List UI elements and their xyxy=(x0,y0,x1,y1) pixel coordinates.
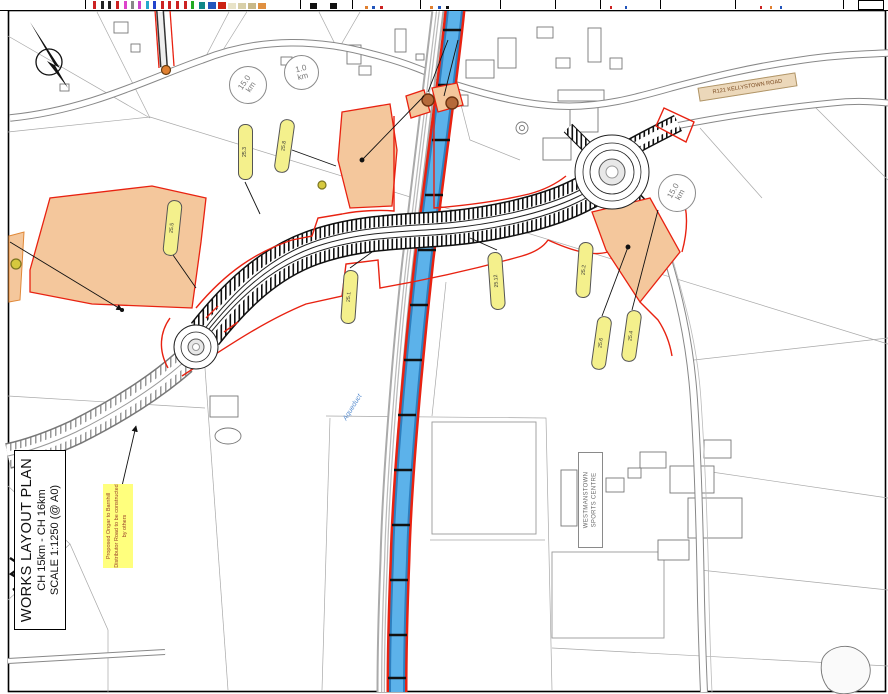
legend-divider xyxy=(843,0,844,9)
legend-divider xyxy=(660,0,661,9)
legend-end-box xyxy=(858,0,884,10)
legend-swatch xyxy=(780,6,782,9)
chainage-marker: 15.0km xyxy=(658,174,696,212)
legend-divider xyxy=(735,0,736,9)
legend-swatch xyxy=(101,1,104,9)
legend-divider xyxy=(600,0,601,9)
legend-swatch xyxy=(258,3,266,9)
title-block: WORKS LAYOUT PLAN CH 15km - CH 16km SCAL… xyxy=(14,450,66,630)
legend-swatch xyxy=(191,1,194,9)
legend-divider xyxy=(85,0,86,9)
works-layout-plan-page: WORKS LAYOUT PLAN CH 15km - CH 16km SCAL… xyxy=(0,0,888,694)
legend-swatch xyxy=(184,1,187,9)
legend-swatch xyxy=(199,2,205,9)
pond xyxy=(821,646,870,693)
distributor-road xyxy=(8,362,184,456)
legend-swatch xyxy=(372,6,375,9)
legend-strip xyxy=(0,0,888,11)
legend-swatch xyxy=(610,6,612,9)
sports-pitches xyxy=(432,422,664,638)
legend-swatch xyxy=(248,3,256,9)
sports-centre-label: WESTMANSTOWN SPORTS CENTRE xyxy=(578,452,603,548)
legend-divider xyxy=(352,0,353,9)
legend-divider xyxy=(420,0,421,9)
map-canvas xyxy=(0,0,888,694)
legend-divider xyxy=(300,0,301,9)
chainage-marker: 1.0km xyxy=(284,55,319,90)
legend-swatch xyxy=(93,1,96,9)
legend-swatch xyxy=(770,6,772,9)
legend-swatch xyxy=(153,1,156,9)
legend-swatch xyxy=(228,3,236,9)
north-arrow-icon xyxy=(30,22,68,88)
legend-swatch xyxy=(208,2,216,9)
legend-swatch xyxy=(430,6,433,9)
legend-swatch xyxy=(138,1,141,9)
legend-swatch xyxy=(146,1,149,9)
roundabout-east xyxy=(575,135,649,209)
legend-swatch xyxy=(365,6,368,9)
legend-swatch xyxy=(168,1,171,9)
legend-swatch xyxy=(438,6,441,9)
construction-note-text: Proposed Ongar to Barnhill Distributor R… xyxy=(103,484,133,568)
legend-swatch xyxy=(124,1,127,9)
legend-swatch xyxy=(116,1,119,9)
legend-swatch xyxy=(238,3,246,9)
legend-swatch xyxy=(131,1,134,9)
legend-swatch xyxy=(330,3,337,9)
plan-scale: SCALE 1:1250 (@ A0) xyxy=(49,485,61,595)
legend-swatch xyxy=(380,6,383,9)
plan-chainage: CH 15km - CH 16km xyxy=(36,489,48,590)
roundabout-west xyxy=(174,325,218,369)
construction-note: Proposed Ongar to Barnhill Distributor R… xyxy=(103,484,133,568)
legend-swatch xyxy=(176,1,179,9)
plot-ref-label: 25.3 xyxy=(238,124,253,180)
legend-swatch xyxy=(310,3,317,9)
legend-swatch xyxy=(625,6,627,9)
legend-swatch xyxy=(446,6,449,9)
legend-swatch xyxy=(108,1,111,9)
access-road-north xyxy=(155,10,174,75)
legend-divider xyxy=(555,0,556,9)
legend-divider xyxy=(500,0,501,9)
legend-swatch xyxy=(161,1,164,9)
plan-title: WORKS LAYOUT PLAN xyxy=(19,458,35,622)
legend-swatch xyxy=(760,6,762,9)
legend-swatch xyxy=(218,2,226,9)
chainage-marker: 15.0km xyxy=(229,66,267,104)
